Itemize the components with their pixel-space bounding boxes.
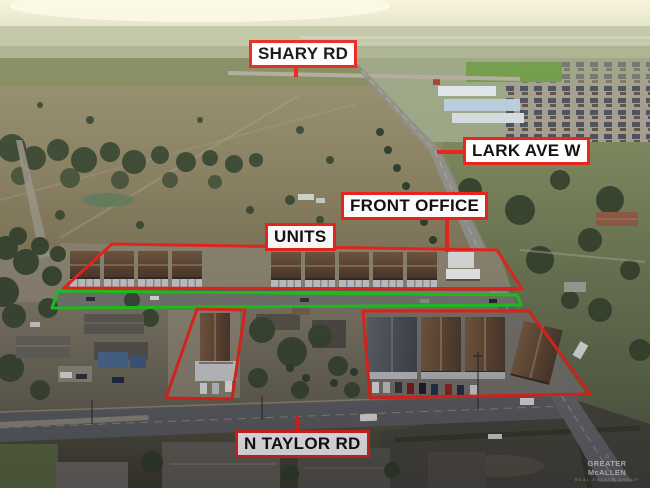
south-complex-right-outline	[363, 311, 590, 398]
label-lark-ave-w: LARK AVE W	[463, 137, 590, 165]
aerial-photo-canvas: SHARY RD LARK AVE W FRONT OFFICE UNITS N…	[0, 0, 650, 488]
watermark-title: GREATER McALLEN	[568, 459, 646, 477]
units-strip-outline	[64, 244, 522, 289]
south-building-left-outline	[166, 309, 245, 399]
label-shary-rd: SHARY RD	[249, 40, 357, 68]
driveway-outline	[52, 291, 521, 308]
watermark: ⌂ GREATER McALLEN REAL ESTATE GROUP	[568, 454, 646, 482]
label-front-office: FRONT OFFICE	[341, 192, 488, 220]
label-n-taylor-rd: N TAYLOR RD	[235, 430, 370, 458]
label-units: UNITS	[265, 223, 336, 251]
watermark-subtitle: REAL ESTATE GROUP	[568, 477, 646, 482]
